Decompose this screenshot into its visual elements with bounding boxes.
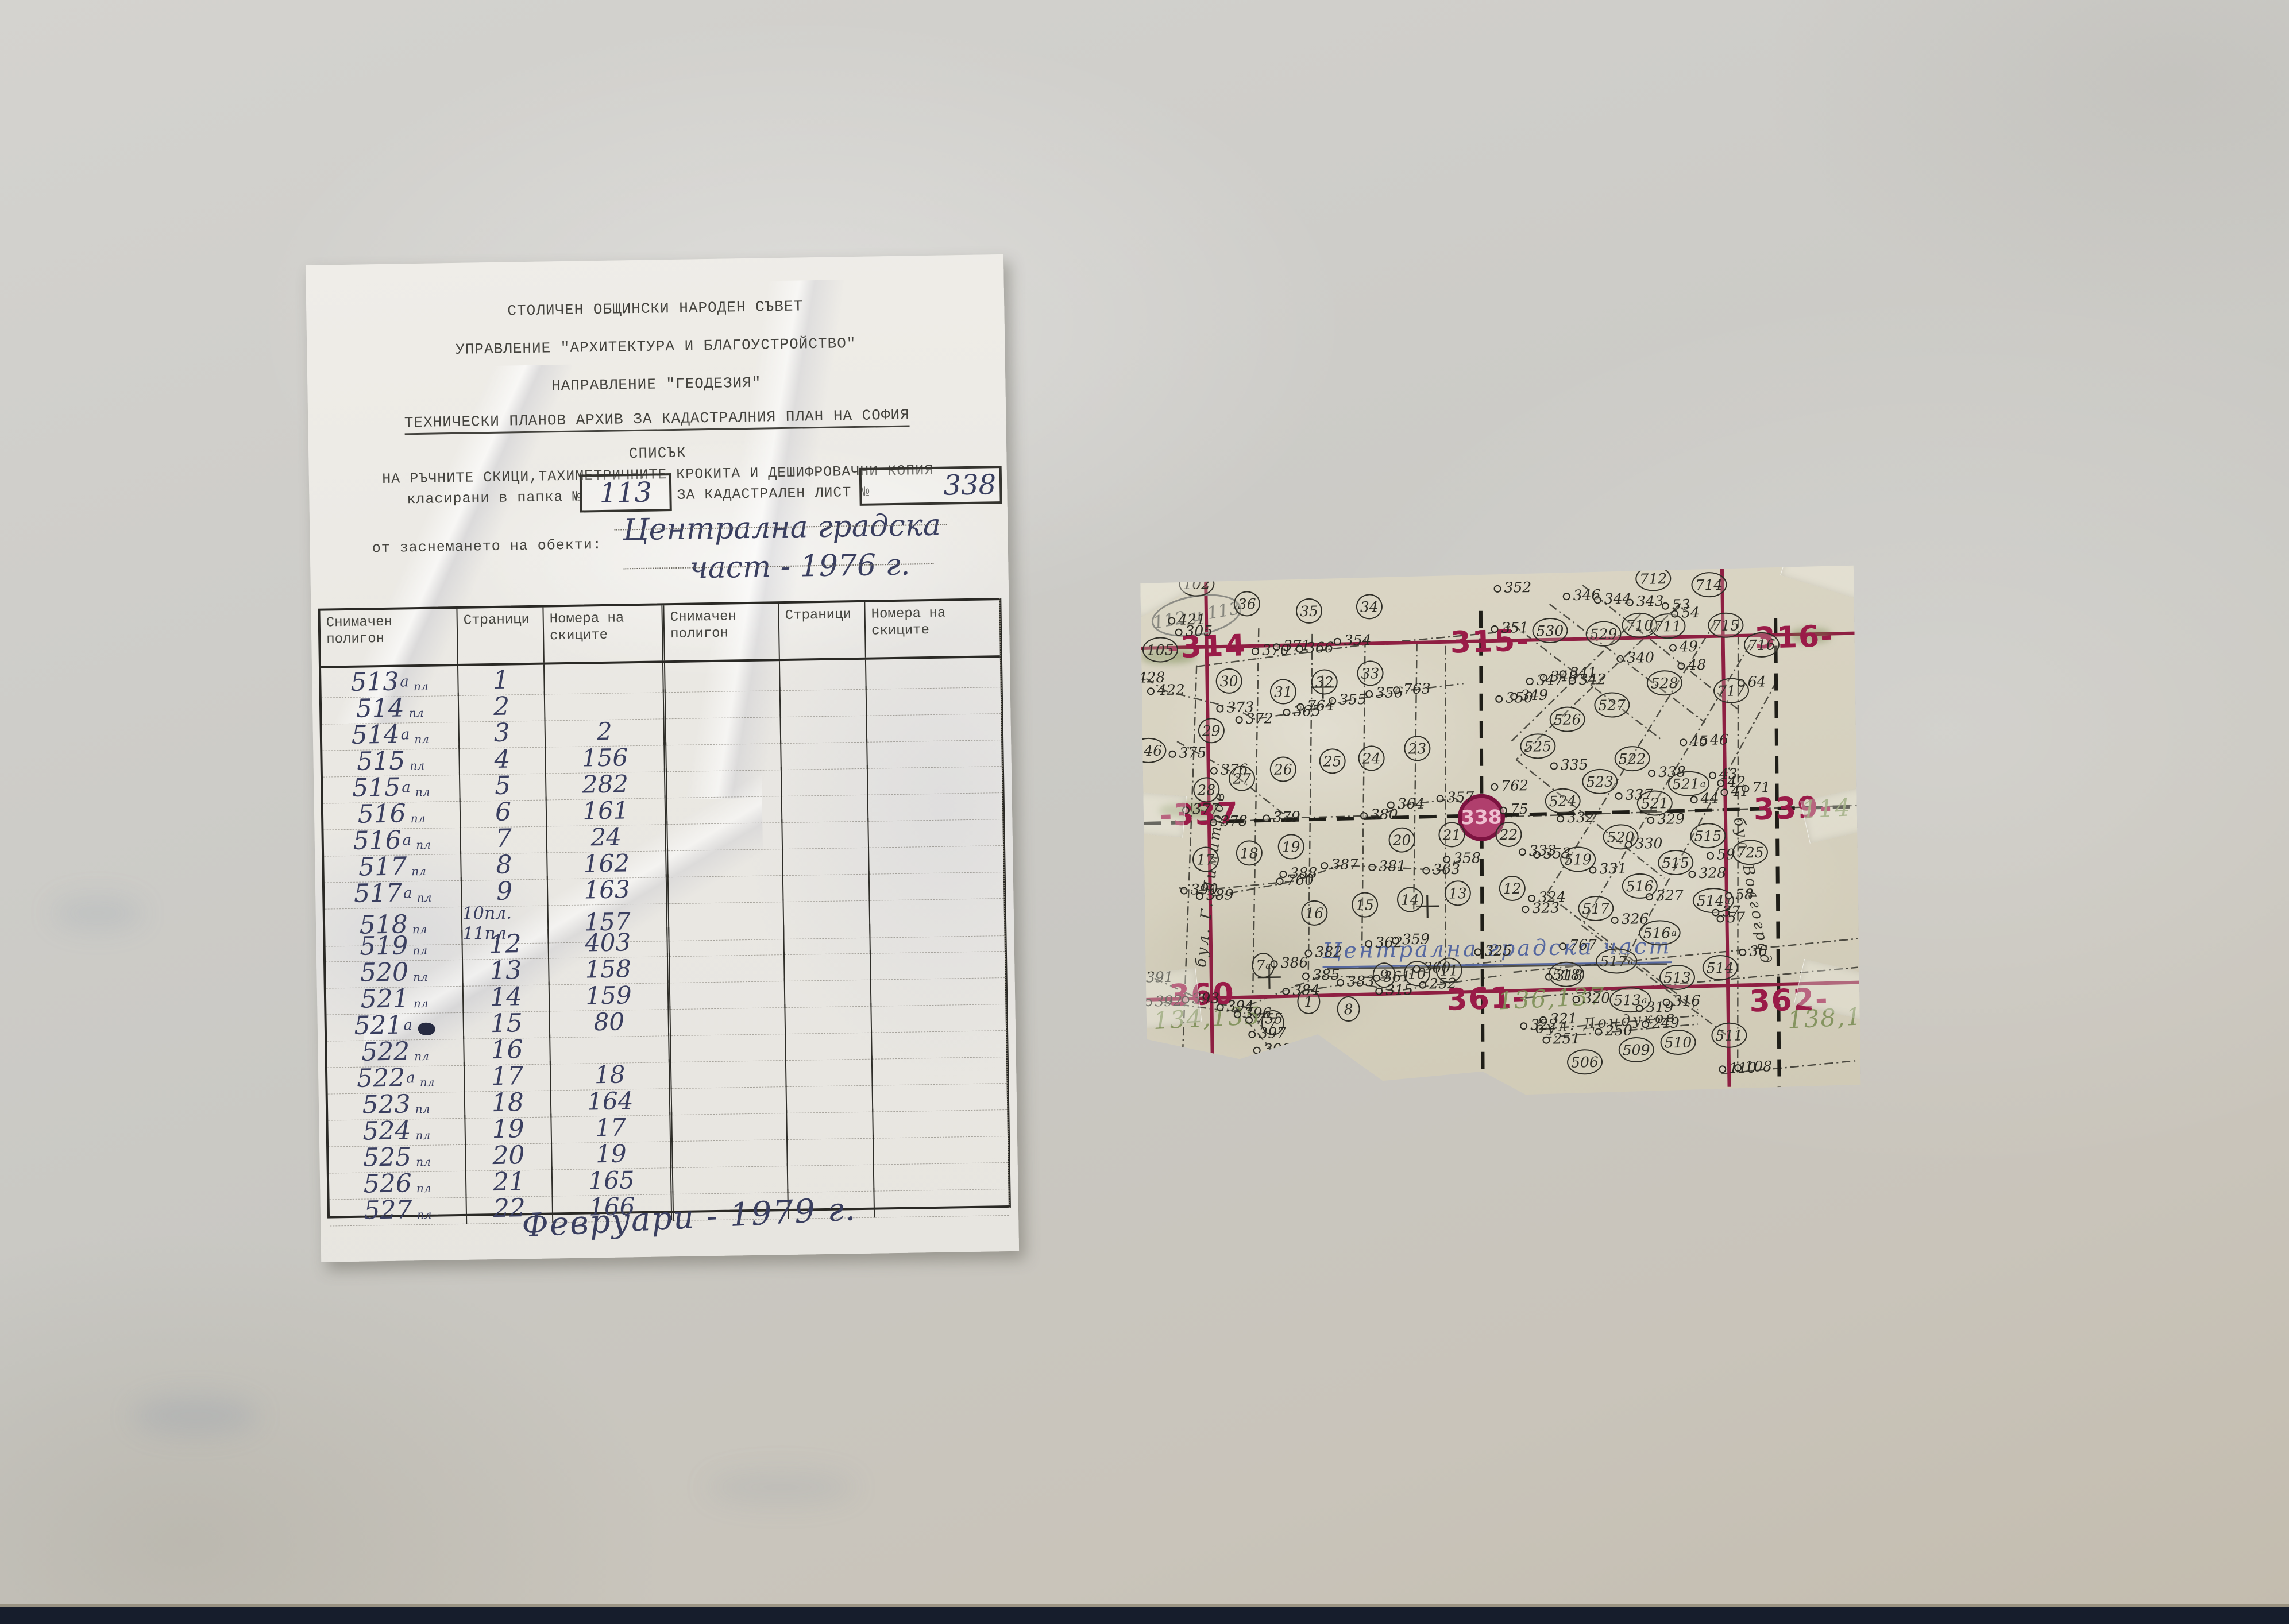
- polygon-number: 520: [360, 960, 409, 985]
- pages-value: 12: [489, 929, 522, 959]
- polygon-circle-number: 35: [1296, 598, 1322, 624]
- board-bottom-edge: [0, 1607, 2289, 1624]
- table-header-row: Снимачен полигонСтранициНомера на скицит…: [320, 600, 999, 668]
- folder-number: 113: [599, 477, 652, 509]
- polygon-circle-number: 12: [1499, 876, 1525, 902]
- polygon-circle-value: 146: [1134, 742, 1162, 759]
- polygon-circle-number: 24: [1358, 745, 1384, 771]
- pages-value: 16: [491, 1035, 523, 1065]
- sketches-value: 159: [585, 981, 632, 1010]
- polygon-circle-number: 16: [1301, 900, 1327, 926]
- survey-point-label: 36: [1739, 942, 1767, 960]
- polygon-circle-value: 513: [1663, 969, 1691, 986]
- polygon-circle-number: 22: [1495, 822, 1522, 848]
- table-header-cell: Снимачен полигон: [320, 609, 458, 666]
- polygon-suffix: пл: [411, 812, 426, 823]
- pages-value: 21: [493, 1167, 526, 1197]
- survey-point-label: 326: [1611, 910, 1649, 927]
- sketches-value: 17: [595, 1113, 626, 1142]
- pages-value: 4: [494, 745, 511, 774]
- survey-point-label: 357: [1436, 788, 1474, 806]
- sketch-list-table: Снимачен полигонСтранициНомера на скицит…: [318, 598, 1011, 1219]
- polygon-circle-number: 23: [1404, 736, 1430, 761]
- polygon-number: 517: [358, 854, 407, 880]
- survey-point-label: 389: [1196, 886, 1234, 903]
- polygon-circle-value: 20: [1392, 832, 1411, 848]
- polygon-circle-value: 515: [1694, 827, 1721, 844]
- polygon-circle-sup: а: [1671, 927, 1677, 938]
- polygon-suffix: пл: [416, 1182, 431, 1193]
- polygon-circle-number: 13: [1445, 880, 1471, 906]
- survey-point-label: 335: [1550, 756, 1588, 774]
- survey-point-label: 428: [1127, 669, 1165, 686]
- polygon-circle-value: 715: [1712, 617, 1739, 634]
- survey-point-label: 343: [1626, 593, 1664, 610]
- list-document-sheet: СТОЛИЧЕН ОБЩИНСКИ НАРОДЕН СЪВЕТ УПРАВЛЕН…: [306, 254, 1019, 1262]
- polygon-number: 514: [351, 722, 400, 748]
- polygon-circle-value: 528: [1651, 674, 1678, 691]
- cadastral-index-map: 112 и 113 338 Централна градска част -31…: [1140, 566, 1861, 1103]
- pages-value: 5: [495, 771, 511, 801]
- polygon-circle-value: 16: [1305, 904, 1323, 921]
- polygon-number: 516: [353, 828, 402, 853]
- survey-point-label: 360: [1413, 959, 1451, 976]
- survey-point-label: 332: [1557, 809, 1595, 826]
- polygon-number: 515: [357, 748, 406, 774]
- polygon-circle-value: 7: [1256, 957, 1265, 974]
- board-smudge: [707, 1470, 856, 1505]
- sketches-value: 403: [585, 928, 631, 957]
- survey-point-label: 366: [1296, 639, 1334, 656]
- polygon-circle-value: 529: [1589, 625, 1617, 643]
- pages-value: 14: [490, 982, 523, 1012]
- pages-value: 17: [491, 1061, 524, 1091]
- survey-point-label: 354: [1334, 632, 1372, 649]
- survey-point-label: 763: [1393, 680, 1431, 697]
- polygon-circle-value: 8: [1344, 1000, 1353, 1017]
- objects-label: от заснемането на обекти:: [372, 536, 602, 556]
- polygon-number: 521: [354, 1012, 403, 1038]
- polygon-circle-value: 24: [1362, 750, 1380, 767]
- polygon-suffix: пл: [420, 1076, 435, 1088]
- survey-point-label: 328: [1688, 864, 1726, 881]
- polygon-circle-number: 34: [1356, 594, 1383, 620]
- polygon-circle-value: 31: [1274, 683, 1292, 700]
- board-smudge: [132, 1395, 258, 1436]
- polygon-circle-value: 714: [1695, 576, 1723, 593]
- polygon-number: 513: [350, 669, 399, 695]
- polygon-circle-value: 35: [1300, 602, 1318, 619]
- polygon-circle-value: 18: [1240, 845, 1259, 861]
- polygon-circle-number: 19: [1277, 834, 1304, 860]
- cadastral-sheet-label: ЗА КАДАСТРАЛЕН ЛИСТ №: [677, 484, 870, 504]
- survey-point-label: 387: [1321, 856, 1358, 873]
- polygon-circle-value: 17: [1196, 851, 1215, 868]
- folder-number-box: 113: [580, 473, 672, 513]
- survey-point-label: 54: [1671, 604, 1700, 621]
- table-header-cell: Номера на скиците: [543, 605, 665, 662]
- polygon-circle-value: 517: [1600, 953, 1627, 970]
- survey-point-label: 108: [1734, 1058, 1772, 1075]
- archive-title: ТЕХНИЧЕСКИ ПЛАНОВ АРХИВ ЗА КАДАСТРАЛНИЯ …: [308, 405, 1006, 433]
- folder-label: класирани в папка №: [407, 489, 581, 508]
- polygon-suffix: пл: [416, 838, 431, 850]
- survey-point-label: 760: [1276, 871, 1314, 888]
- polygon-circle-value: 523: [1586, 773, 1614, 790]
- polygon-suffix: пл: [414, 1050, 429, 1061]
- survey-point-label: 64: [1738, 673, 1766, 690]
- polygon-suffix: пл: [417, 891, 432, 903]
- polygon-circle-value: 30: [1219, 672, 1238, 689]
- polygon-circle-value: 105: [1147, 641, 1174, 659]
- pages-value: 2: [493, 692, 510, 721]
- survey-point-label: 320: [1572, 989, 1610, 1007]
- polygon-circle-value: 506: [1571, 1053, 1599, 1070]
- polygon-sup: а: [400, 674, 409, 689]
- sketches-value: 164: [587, 1086, 634, 1115]
- polygon-number: 527: [364, 1197, 412, 1223]
- polygon-suffix: пл: [414, 733, 429, 744]
- polygon-circle-number: 36: [1233, 591, 1260, 617]
- survey-point-label: 376: [1210, 761, 1248, 778]
- polygon-circle-number: 20: [1388, 827, 1415, 853]
- survey-point-label: 252: [1419, 975, 1457, 992]
- polygon-number: 519: [360, 933, 408, 959]
- survey-point-label: 329: [1647, 810, 1685, 828]
- sketches-value: 163: [584, 875, 630, 904]
- survey-point-label: 249: [1642, 1014, 1680, 1031]
- polygon-circle-value: 515: [1662, 854, 1689, 871]
- pages-value: 1: [493, 666, 509, 695]
- survey-point-label: 340: [1616, 649, 1654, 666]
- polygon-circle-value: 725: [1736, 844, 1764, 861]
- polygon-circle-value: 511: [1715, 1027, 1743, 1044]
- polygon-circle-number: 14: [1397, 887, 1423, 912]
- sketches-value: 2: [597, 717, 613, 745]
- polygon-cell: 527пл: [329, 1194, 467, 1227]
- map-content: 112 и 113 338 Централна градска част -31…: [1140, 566, 1861, 1103]
- polygon-number: 515: [352, 775, 401, 801]
- survey-point-label: 59: [1707, 846, 1735, 863]
- polygon-circle-value: 26: [1274, 761, 1292, 778]
- tape-strip: [1132, 968, 1202, 1030]
- org-line-3: НАПРАВЛЕНИЕ "ГЕОДЕЗИЯ": [307, 370, 1005, 399]
- archive-board: СТОЛИЧЕН ОБЩИНСКИ НАРОДЕН СЪВЕТ УПРАВЛЕН…: [0, 0, 2289, 1624]
- survey-point-label: 351: [1491, 619, 1528, 636]
- tape-strip: [1119, 791, 1187, 838]
- sketches-value: 161: [582, 796, 629, 825]
- survey-point-label: 37: [1712, 903, 1740, 920]
- polygon-suffix: пл: [410, 759, 424, 771]
- survey-point-label: 352: [1493, 579, 1531, 596]
- polygon-circle-value: 28: [1197, 782, 1215, 798]
- polygon-suffix: пл: [411, 865, 426, 876]
- polygon-circle-value: 19: [1282, 838, 1300, 855]
- polygon-circle-value: 525: [1524, 738, 1551, 755]
- board-smudge: [52, 896, 144, 930]
- pages-value: 3: [493, 718, 510, 748]
- survey-point-label: 349: [1510, 687, 1548, 704]
- pages-value: 7: [495, 823, 512, 853]
- polygon-circle-value: 33: [1361, 665, 1379, 682]
- survey-point-label: 342: [1569, 671, 1607, 688]
- survey-point-label: 362: [1365, 934, 1403, 951]
- polygon-circle-value: 526: [1554, 711, 1581, 728]
- polygon-sup: а: [401, 727, 410, 742]
- polygon-sup: а: [403, 886, 412, 900]
- survey-point-label: 355: [1329, 691, 1367, 708]
- polygon-suffix: пл: [415, 1129, 430, 1140]
- archive-title-text: ТЕХНИЧЕСКИ ПЛАНОВ АРХИВ ЗА КАДАСТРАЛНИЯ …: [404, 407, 910, 435]
- polygon-number: 526: [363, 1171, 412, 1197]
- polygon-circle-value: 13: [1449, 885, 1467, 902]
- cadastral-sheet-number: 338: [943, 469, 996, 501]
- survey-point-label: 397: [1248, 1024, 1286, 1042]
- survey-point-label: 48: [1677, 656, 1706, 674]
- polygon-number: 522: [357, 1065, 406, 1091]
- org-line-2: УПРАВЛЕНИЕ "АРХИТЕКТУРА И БЛАГОУСТРОЙСТВ…: [307, 332, 1005, 361]
- polygon-circle-value: 25: [1323, 753, 1341, 770]
- polygon-circle-number: 17: [1192, 846, 1219, 872]
- survey-point-label: 762: [1491, 777, 1528, 794]
- survey-point-label: 337: [1615, 786, 1653, 803]
- polygon-circle-value: 524: [1549, 792, 1576, 810]
- survey-point-label: 44: [1690, 790, 1719, 807]
- polygon-circle-number: 26: [1270, 756, 1296, 782]
- survey-point-label: 379: [1263, 809, 1300, 826]
- polygon-circle-value: 29: [1202, 722, 1221, 739]
- polygon-circle-value: 14: [1401, 891, 1419, 908]
- survey-point-label: 364: [1387, 795, 1425, 813]
- survey-point-label: 382: [1304, 944, 1342, 961]
- table-body: 513апл1514пл2514апл32515пл4156515апл5282…: [321, 658, 1009, 1223]
- polygon-circle-number: 30: [1215, 668, 1242, 694]
- polygon-suffix: пл: [416, 1155, 431, 1167]
- sketches-value: 19: [596, 1139, 627, 1168]
- survey-point-label: 45: [1680, 733, 1708, 750]
- polygon-circle-number: 21: [1438, 822, 1465, 848]
- polygon-sup: а: [406, 1070, 415, 1085]
- polygon-circle-value: 527: [1598, 697, 1626, 714]
- polygon-circle-value: 21: [1442, 826, 1461, 843]
- polygon-sup: а: [402, 780, 411, 795]
- survey-point-label: 381: [1368, 857, 1406, 875]
- ink-blot: [418, 1022, 435, 1035]
- polygon-suffix: пл: [416, 1208, 431, 1220]
- pages-value: 6: [495, 797, 512, 826]
- polygon-circle-number: 33: [1357, 660, 1383, 686]
- polygon-number: 522: [361, 1039, 410, 1065]
- polygon-circle-sup: а: [1628, 956, 1634, 966]
- survey-point-label: 333: [1519, 842, 1557, 859]
- table-header-cell: Страници: [779, 602, 866, 659]
- survey-point-label: 378: [1210, 813, 1248, 830]
- polygon-number: 525: [363, 1144, 412, 1170]
- polygon-circle-number: 31: [1270, 679, 1296, 705]
- pages-value: 19: [492, 1114, 524, 1144]
- survey-point-label: 71: [1742, 779, 1770, 796]
- org-line-1: СТОЛИЧЕН ОБЩИНСКИ НАРОДЕН СЪВЕТ: [306, 295, 1004, 323]
- polygon-circle-value: 34: [1360, 598, 1379, 615]
- pages-value: 9: [496, 876, 513, 906]
- survey-point-label: 398: [1253, 1041, 1291, 1058]
- polygon-number: 524: [362, 1118, 411, 1144]
- polygon-sup: а: [402, 833, 411, 848]
- sketches-value: 80: [593, 1007, 624, 1036]
- polygon-circle-number: 18: [1236, 840, 1263, 866]
- survey-point-label: 375: [1168, 744, 1206, 761]
- table-header-cell: Снимачен полигон: [664, 604, 779, 660]
- survey-point-label: 75: [1500, 801, 1528, 818]
- polygon-circle-value: 12: [1503, 880, 1522, 896]
- survey-point-label: 58: [1725, 886, 1754, 903]
- polygon-number: 523: [362, 1092, 411, 1118]
- survey-point-label: 250: [1595, 1022, 1632, 1039]
- polygon-circle-value: 36: [1238, 596, 1256, 612]
- survey-point-label: 421: [1168, 611, 1206, 628]
- survey-point-label: 331: [1589, 860, 1627, 877]
- polygon-number: 516: [357, 801, 406, 827]
- table-header-cell: Номера на скиците: [865, 600, 999, 658]
- polygon-sup: а: [403, 1018, 412, 1033]
- polygon-suffix: пл: [413, 970, 428, 982]
- empty-sketches-cell: [874, 1186, 1009, 1218]
- pages-value: 20: [492, 1140, 525, 1170]
- polygon-circle-sup: а: [1700, 778, 1706, 789]
- sketches-value: 158: [585, 954, 631, 983]
- polygon-circle-value: 15: [1356, 896, 1374, 913]
- polygon-circle-value: 712: [1639, 570, 1667, 587]
- survey-point-label: 327: [1646, 887, 1684, 904]
- survey-point-label: 318: [1545, 967, 1583, 984]
- cadastral-sheet-box: 338: [859, 466, 1002, 506]
- survey-point-label: 372: [1235, 710, 1273, 727]
- sketches-value: 18: [595, 1060, 626, 1089]
- polygon-suffix: пл: [415, 1103, 430, 1114]
- polygon-suffix: пл: [412, 944, 427, 956]
- polygon-suffix: пл: [415, 786, 430, 797]
- polygon-circle-value: 510: [1664, 1034, 1692, 1051]
- polygon-circle-value: 522: [1618, 750, 1646, 767]
- polygon-suffix: пл: [414, 680, 429, 691]
- polygon-circle-value: 23: [1408, 740, 1426, 757]
- survey-point-label: 251: [1542, 1030, 1580, 1047]
- polygon-circle-value: 509: [1623, 1041, 1650, 1058]
- polygon-circle-number: 29: [1198, 718, 1225, 744]
- pages-value: 8: [496, 850, 512, 879]
- sketches-value: 165: [588, 1166, 635, 1194]
- polygon-circle-value: 530: [1536, 622, 1564, 639]
- polygon-number: 514: [356, 695, 404, 721]
- survey-point-label: 363: [1422, 861, 1460, 878]
- polygon-circle-number: 28: [1193, 777, 1219, 803]
- pages-value: 15: [490, 1008, 523, 1038]
- survey-point-label: 316: [1662, 992, 1700, 1010]
- pages-value: 18: [492, 1088, 524, 1118]
- survey-point-label: 49: [1669, 638, 1698, 655]
- polygon-circle-value: 514: [1707, 959, 1734, 976]
- sketches-value: 156: [582, 743, 628, 772]
- polygon-number: 521: [360, 986, 409, 1012]
- survey-point-label: 383: [1337, 973, 1375, 990]
- polygon-suffix: пл: [409, 706, 424, 718]
- survey-point-label: 323: [1522, 899, 1560, 917]
- sketches-value: 24: [590, 822, 622, 851]
- survey-point-label: 325: [1474, 942, 1512, 960]
- sketches-value: 162: [583, 849, 630, 877]
- polygon-circle-value: 716: [1748, 636, 1775, 654]
- polygon-circle-value: 710: [1626, 617, 1653, 634]
- survey-point-label: 330: [1625, 835, 1663, 852]
- table-header-cell: Страници: [457, 608, 544, 664]
- polygon-number: 517: [354, 880, 403, 906]
- polygon-circle-number: 15: [1352, 892, 1378, 918]
- polygon-suffix: пл: [414, 997, 429, 1008]
- polygon-circle-value: 517: [1582, 900, 1609, 917]
- sketches-value: 282: [582, 770, 628, 798]
- survey-point-label: 315: [1375, 981, 1413, 999]
- polygon-circle-value: 22: [1499, 826, 1518, 842]
- polygon-circle-value: 32: [1315, 674, 1334, 690]
- polygon-circle-number: 25: [1319, 748, 1345, 774]
- pages-value: 13: [489, 956, 522, 985]
- survey-point-label: 384: [1282, 981, 1320, 999]
- survey-point-label: 385: [1302, 966, 1340, 984]
- survey-point-label: 767: [1559, 936, 1597, 953]
- survey-point-label: 338: [1648, 763, 1686, 780]
